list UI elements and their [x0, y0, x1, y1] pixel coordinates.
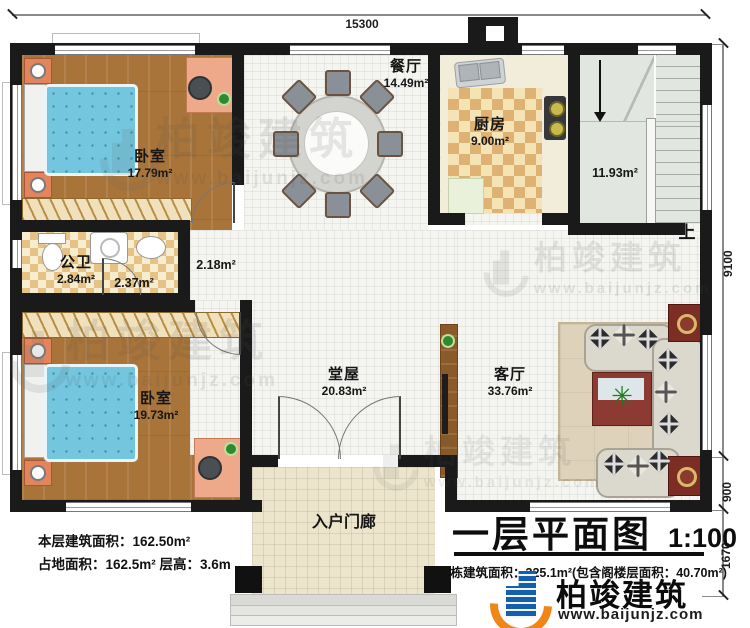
lamp-icon	[30, 63, 46, 79]
desk-chair	[188, 76, 212, 100]
room-area: 20.83m²	[304, 384, 384, 398]
porch-step	[230, 615, 457, 626]
window	[12, 355, 22, 470]
room-name: 客厅	[468, 366, 552, 384]
room-name: 堂屋	[304, 366, 384, 384]
nightstand	[24, 338, 52, 364]
dimension-line-right	[722, 44, 724, 597]
dining-chair	[377, 131, 403, 157]
stair-up-label: 上	[674, 218, 700, 243]
stove-burner-icon	[549, 121, 565, 137]
bath-sink	[136, 236, 166, 259]
kitchen-cabinet	[448, 178, 484, 214]
window	[12, 240, 22, 268]
window	[55, 45, 195, 55]
dimension-right-mid: 900	[720, 468, 734, 502]
end-table-medallion-icon	[677, 314, 697, 334]
room-name: 厨房	[450, 116, 530, 134]
room-area: 17.79m²	[88, 166, 212, 180]
end-table-medallion-icon	[677, 467, 697, 487]
desk-chair	[198, 456, 222, 480]
stair-direction-line	[599, 60, 601, 114]
window	[12, 85, 22, 200]
room-name: 餐厅	[368, 58, 444, 76]
brand-url: www.baijunjz.com	[558, 606, 750, 623]
room-area: 14.49m²	[368, 76, 444, 90]
window	[290, 45, 390, 55]
floor-note-line2: 占地面积：162.5m² 层高：3.6m	[38, 553, 298, 576]
kitchen-door-floor	[465, 213, 542, 225]
window	[702, 105, 712, 210]
window	[66, 502, 191, 512]
floor-plan-canvas: 15300 9100 900 1670	[0, 0, 750, 628]
room-label-central-hall: 堂屋 20.83m²	[304, 366, 384, 398]
kitchen-sink-basin	[458, 63, 480, 82]
wall-hall-bottom-right	[398, 455, 450, 467]
dining-chair	[325, 192, 351, 218]
dining-chair	[325, 70, 351, 96]
window	[638, 45, 676, 55]
wall-stair-south	[580, 223, 685, 235]
wall-kitchen-right	[568, 43, 580, 235]
wall-bedroom1-right	[232, 55, 244, 185]
chimney-flue	[486, 26, 504, 41]
lamp-icon	[30, 343, 46, 359]
tv-screen	[442, 374, 448, 434]
stove-burner-icon	[549, 101, 565, 117]
bedroom2-door-floor	[195, 300, 240, 312]
dining-table-top	[304, 111, 369, 176]
room-label-porch: 入户门廊	[292, 508, 396, 532]
kitchen-sink-basin	[479, 61, 501, 80]
room-label-living: 客厅 33.76m²	[468, 366, 552, 398]
plan-scale: 1:100	[668, 523, 737, 554]
room-area-bath-side: 2.37m²	[98, 276, 170, 290]
floor-notes: 本层建筑面积：162.50m² 占地面积：162.5m² 层高：3.6m	[38, 530, 298, 576]
floor-note-line1: 本层建筑面积：162.50m²	[38, 530, 298, 553]
wall-bedroom2-top	[10, 300, 195, 312]
room-label-dining: 餐厅 14.49m²	[368, 58, 444, 90]
dimension-line-top	[12, 14, 706, 16]
room-area: 19.73m²	[94, 408, 218, 422]
nightstand	[24, 58, 52, 84]
stair-arrow-head	[594, 112, 606, 122]
room-label-bedroom2: 卧室 19.73m²	[94, 390, 218, 422]
window	[522, 45, 564, 55]
room-area: 33.76m²	[468, 384, 552, 398]
dimension-top-value: 15300	[330, 17, 394, 31]
title-underline	[454, 552, 704, 556]
plant-icon	[226, 444, 236, 454]
plan-title-text: 一层平面图	[452, 504, 652, 558]
room-label-kitchen: 厨房 9.00m²	[450, 116, 530, 148]
stair-treads	[654, 55, 702, 223]
wall-bathroom-top	[10, 220, 190, 232]
wardrobe	[22, 198, 192, 222]
plan-title: 一层平面图 1:100	[452, 504, 708, 558]
plant-icon: ✳	[606, 380, 638, 412]
dimension-right-main: 9100	[721, 233, 735, 277]
wall-kitchen-bottom	[542, 213, 570, 225]
bed-headboard	[24, 84, 46, 172]
nightstand	[24, 460, 52, 486]
room-name: 卧室	[94, 390, 218, 408]
wall-kitchen-bottom	[428, 213, 465, 225]
window	[702, 335, 712, 450]
lamp-icon	[30, 177, 46, 193]
lamp-icon	[30, 465, 46, 481]
wall-hall-bottom-left	[250, 455, 278, 467]
room-name: 卧室	[88, 148, 212, 166]
room-area-hallway: 2.18m²	[180, 258, 252, 272]
plant-icon	[443, 336, 453, 346]
room-name: 公卫	[40, 254, 112, 272]
room-area: 9.00m²	[450, 134, 530, 148]
plant-icon	[219, 94, 229, 104]
dining-chair	[273, 131, 299, 157]
room-label-bedroom1: 卧室 17.79m²	[88, 148, 212, 180]
wall-bedroom2-right	[240, 300, 252, 500]
bed-headboard	[24, 364, 46, 458]
room-area-stairwell: 11.93m²	[574, 166, 656, 180]
